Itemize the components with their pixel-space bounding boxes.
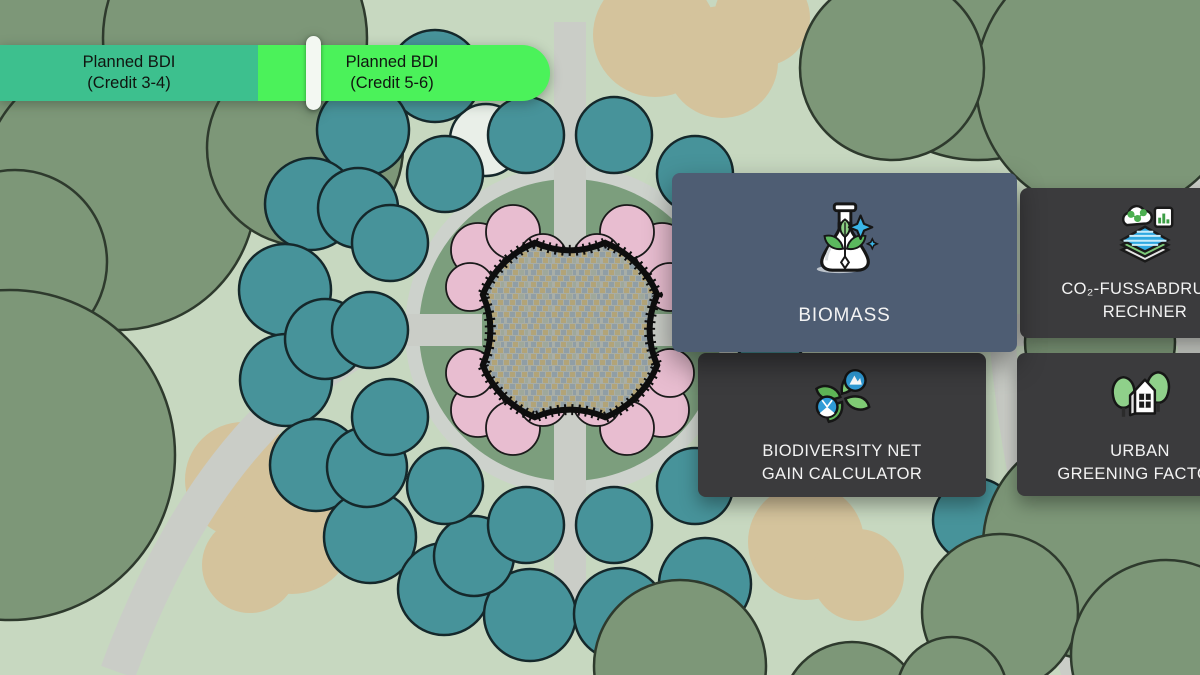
co2-layers-icon	[1112, 202, 1178, 268]
toggle-label-left: Planned BDI (Credit 3-4)	[0, 52, 258, 94]
app-window: Planned BDI (Credit 3-4) Planned BDI (Cr…	[0, 0, 1200, 675]
toggle-slider-handle[interactable]	[306, 36, 321, 110]
co2-card-label: CO₂-FUSSABDRUCK RECHNER	[1061, 278, 1200, 324]
co2-footprint-card[interactable]: CO₂-FUSSABDRUCK RECHNER	[1020, 188, 1200, 338]
toggle-label-right: Planned BDI (Credit 5-6)	[262, 52, 522, 94]
map-central-plaza	[483, 243, 657, 417]
bdi-toggle: Planned BDI (Credit 3-4) Planned BDI (Cr…	[0, 45, 550, 101]
leaves-gauges-icon	[809, 364, 875, 430]
house-trees-icon	[1107, 364, 1173, 430]
site-plan-map	[0, 0, 1200, 675]
urban-greening-factor-card[interactable]: URBAN GREENING FACTOR	[1017, 353, 1200, 496]
biomass-card[interactable]: BIOMASS	[672, 173, 1017, 352]
biodiversity-net-gain-card[interactable]: BIODIVERSITY NET GAIN CALCULATOR	[698, 353, 986, 497]
flask-leaf-icon	[806, 198, 884, 276]
biomass-card-label: BIOMASS	[798, 304, 890, 327]
ugf-card-label: URBAN GREENING FACTOR	[1057, 440, 1200, 486]
bng-card-label: BIODIVERSITY NET GAIN CALCULATOR	[762, 440, 922, 486]
